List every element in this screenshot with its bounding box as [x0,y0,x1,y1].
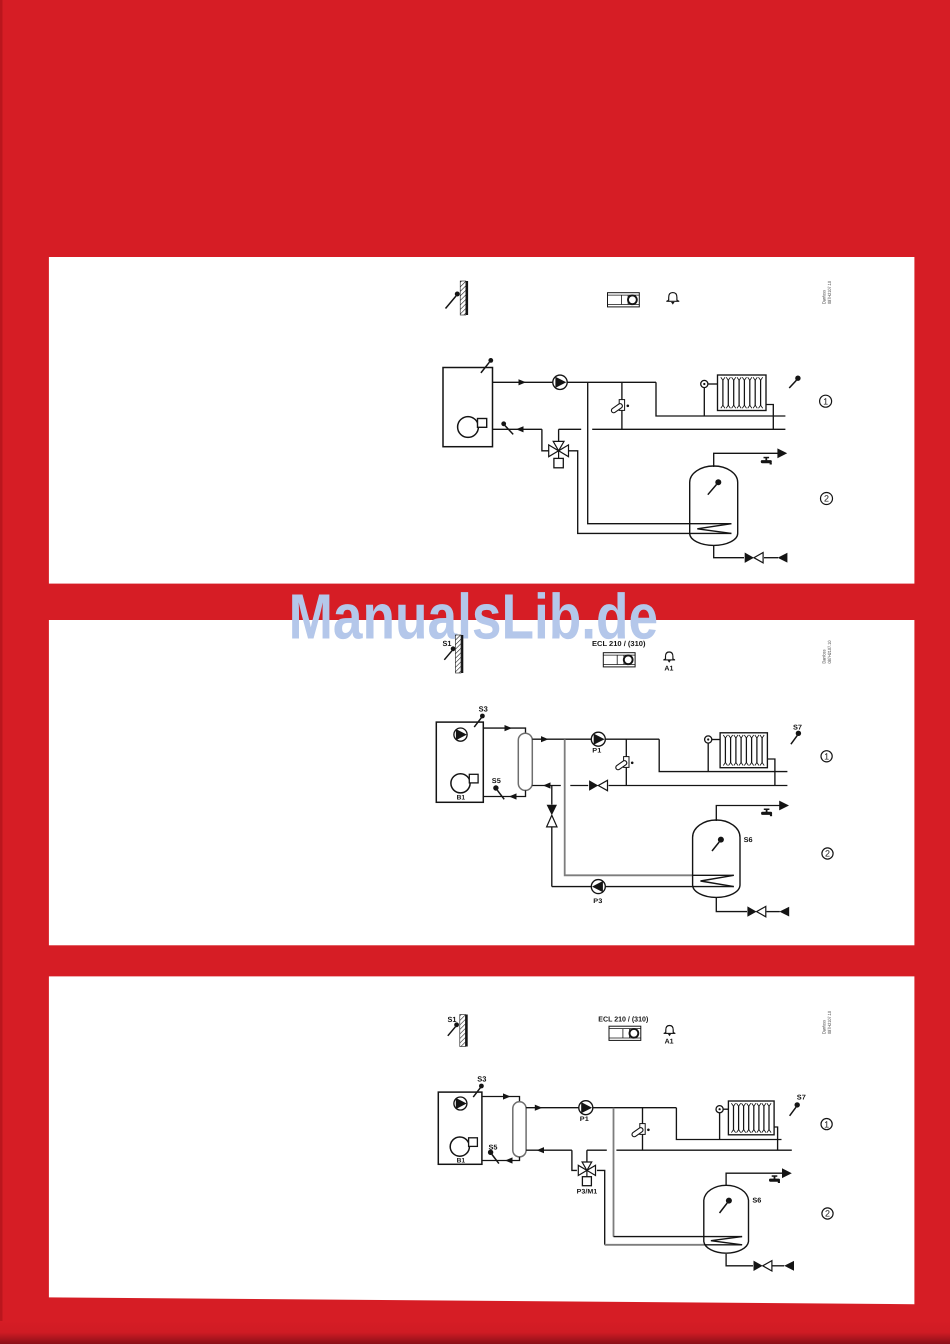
svg-text:P1: P1 [592,748,601,755]
svg-text:1: 1 [823,396,828,406]
svg-text:S7: S7 [797,1095,806,1102]
svg-text:087H2107.10: 087H2107.10 [827,640,832,663]
svg-text:S5: S5 [492,778,501,785]
svg-text:1: 1 [824,752,829,762]
svg-text:087H2107.10: 087H2107.10 [827,281,832,304]
svg-text:P1: P1 [580,1116,589,1123]
svg-text:B1: B1 [457,795,466,802]
svg-text:Danfoss: Danfoss [822,649,827,664]
svg-text:S3: S3 [479,705,488,714]
svg-text:S7: S7 [793,725,802,732]
svg-text:P3: P3 [593,898,602,905]
svg-text:2: 2 [825,1209,830,1219]
svg-text:ECL 210 / (310): ECL 210 / (310) [592,639,646,648]
svg-text:ECL 210 / (310): ECL 210 / (310) [598,1015,649,1024]
svg-text:2: 2 [824,494,829,504]
svg-text:Danfoss: Danfoss [822,1019,827,1034]
svg-text:S1: S1 [443,639,452,648]
svg-text:P3/M1: P3/M1 [577,1189,598,1196]
svg-text:A1: A1 [665,1039,674,1046]
svg-text:S6: S6 [752,1198,761,1205]
svg-text:Danfoss: Danfoss [822,289,827,304]
svg-text:1: 1 [824,1119,829,1129]
svg-text:S3: S3 [477,1075,486,1084]
svg-text:B1: B1 [457,1158,466,1165]
svg-text:S1: S1 [448,1015,457,1024]
svg-text:A1: A1 [664,665,673,672]
svg-text:2: 2 [825,849,830,859]
svg-text:S6: S6 [744,837,753,844]
svg-text:087H2107.10: 087H2107.10 [827,1011,832,1034]
